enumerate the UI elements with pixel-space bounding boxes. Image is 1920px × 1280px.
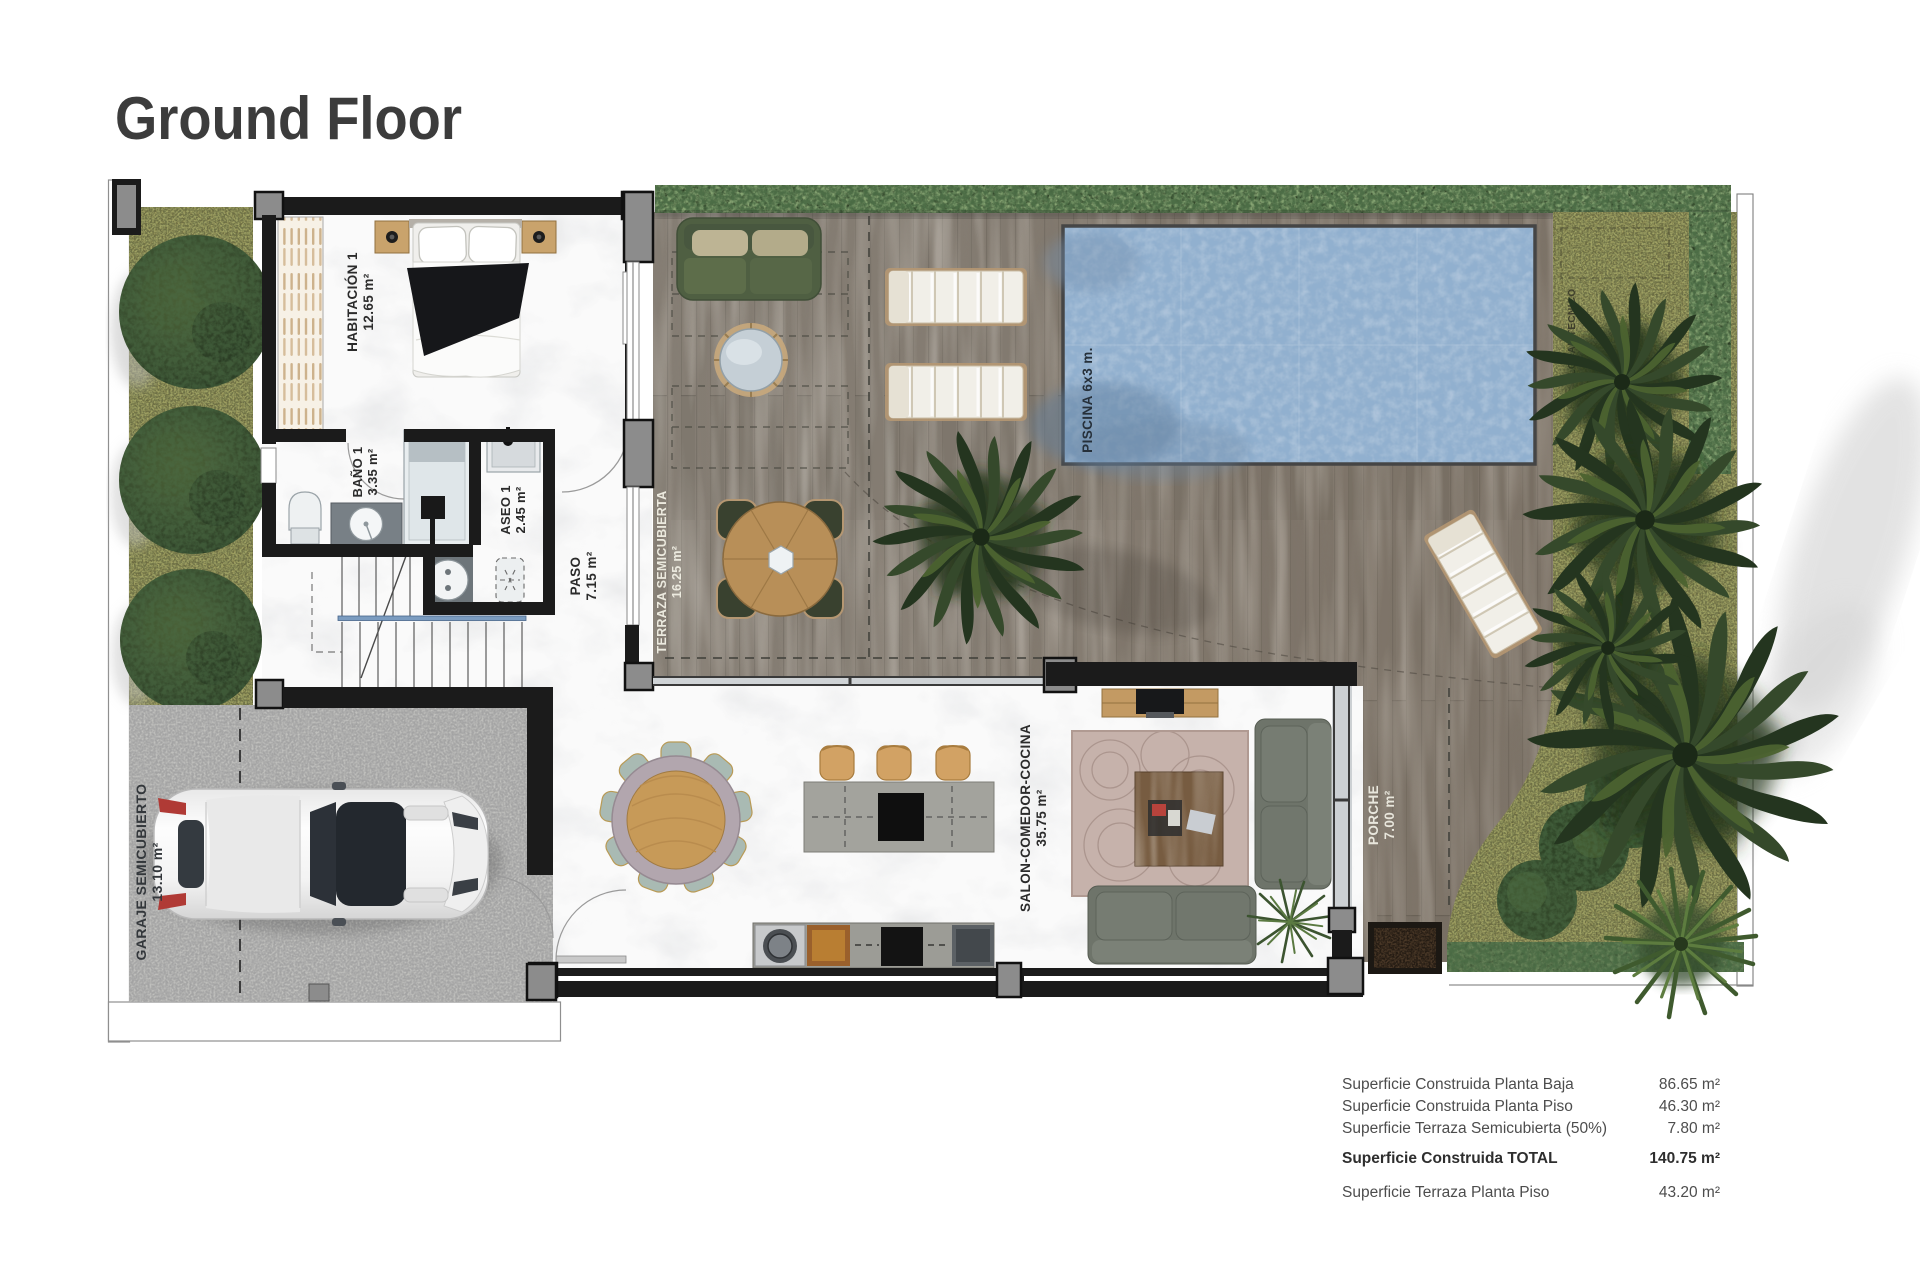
- svg-text:46.30 m²: 46.30 m²: [1659, 1098, 1720, 1115]
- svg-text:7.15 m²: 7.15 m²: [584, 551, 599, 600]
- svg-text:TERRAZA SEMICUBIERTA: TERRAZA SEMICUBIERTA: [655, 491, 669, 654]
- svg-text:16.25 m²: 16.25 m²: [670, 546, 684, 598]
- svg-text:7.80 m²: 7.80 m²: [1667, 1120, 1720, 1137]
- svg-text:Superficie Construida Planta B: Superficie Construida Planta Baja: [1342, 1076, 1574, 1093]
- svg-text:7.00 m²: 7.00 m²: [1382, 790, 1397, 839]
- svg-text:3.35 m²: 3.35 m²: [365, 448, 380, 495]
- svg-text:BAÑO 1: BAÑO 1: [350, 447, 365, 498]
- svg-text:PISCINA 6x3 m.: PISCINA 6x3 m.: [1080, 347, 1095, 453]
- svg-text:GARAJE SEMICUBIERTO: GARAJE SEMICUBIERTO: [133, 784, 149, 961]
- svg-text:140.75 m²: 140.75 m²: [1649, 1150, 1720, 1167]
- svg-text:Ground Floor: Ground Floor: [115, 85, 462, 152]
- svg-text:43.20 m²: 43.20 m²: [1659, 1184, 1720, 1201]
- svg-text:Superficie Terraza Semicubiert: Superficie Terraza Semicubierta (50%): [1342, 1120, 1607, 1137]
- svg-text:86.65 m²: 86.65 m²: [1659, 1076, 1720, 1093]
- svg-text:ASEO 1: ASEO 1: [498, 485, 513, 534]
- svg-text:PASO: PASO: [568, 557, 583, 596]
- svg-text:Superficie Construida TOTAL: Superficie Construida TOTAL: [1342, 1150, 1558, 1167]
- svg-text:PORCHE: PORCHE: [1366, 785, 1381, 845]
- svg-text:Superficie Terraza Planta Piso: Superficie Terraza Planta Piso: [1342, 1184, 1549, 1201]
- svg-text:35.75 m²: 35.75 m²: [1034, 789, 1049, 846]
- svg-text:2.45 m²: 2.45 m²: [513, 486, 528, 533]
- svg-text:Superficie Construida Planta P: Superficie Construida Planta Piso: [1342, 1098, 1573, 1115]
- svg-text:13.10 m²: 13.10 m²: [149, 842, 165, 901]
- svg-text:SALON-COMEDOR-COCINA: SALON-COMEDOR-COCINA: [1018, 724, 1033, 912]
- svg-text:12.65 m²: 12.65 m²: [361, 273, 376, 330]
- svg-text:HABITACIÓN 1: HABITACIÓN 1: [345, 252, 360, 352]
